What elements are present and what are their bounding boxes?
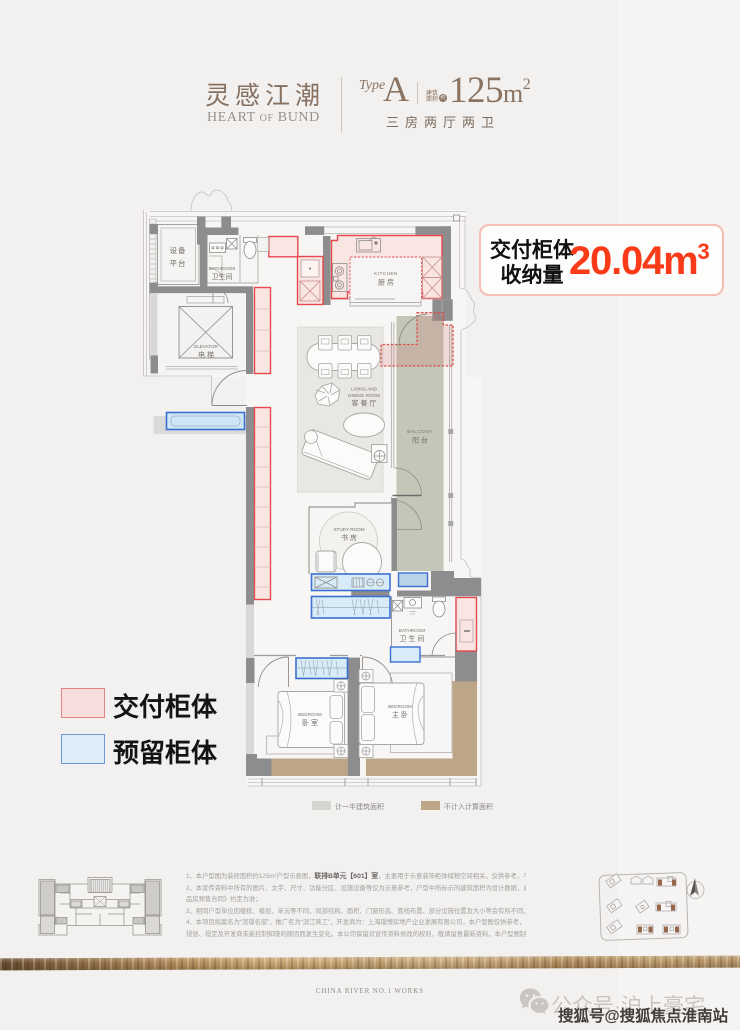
svg-text:BEDROOM: BEDROOM	[298, 712, 322, 717]
svg-text:BEDROOM: BEDROOM	[388, 704, 412, 709]
svg-text:STUDY ROOM: STUDY ROOM	[333, 527, 364, 532]
svg-text:卫生间: 卫生间	[212, 272, 233, 281]
svg-text:设备: 设备	[170, 245, 187, 255]
svg-text:BALCONY: BALCONY	[407, 429, 432, 434]
svg-text:平台: 平台	[170, 258, 187, 268]
svg-text:LIVING AND: LIVING AND	[351, 387, 377, 392]
svg-text:KITCHEN: KITCHEN	[374, 271, 398, 276]
svg-text:BATHROOM: BATHROOM	[399, 628, 425, 633]
svg-text:DINING ROOM: DINING ROOM	[348, 393, 380, 398]
svg-text:书 房: 书 房	[341, 533, 357, 542]
svg-text:ELEVATOR: ELEVATOR	[194, 344, 218, 349]
svg-text:主 卧: 主 卧	[392, 710, 408, 719]
svg-text:卫 生 间: 卫 生 间	[400, 634, 425, 643]
svg-text:计一半建筑面积: 计一半建筑面积	[335, 802, 384, 811]
svg-text:卧 室: 卧 室	[302, 718, 318, 727]
svg-text:不计入计算面积: 不计入计算面积	[444, 802, 493, 811]
svg-text:客 餐 厅: 客 餐 厅	[352, 399, 377, 408]
svg-text:厨 房: 厨 房	[378, 278, 394, 287]
svg-text:电 梯: 电 梯	[198, 350, 214, 359]
svg-text:BATHROOM: BATHROOM	[209, 266, 235, 271]
svg-text:阳 台: 阳 台	[412, 436, 428, 445]
